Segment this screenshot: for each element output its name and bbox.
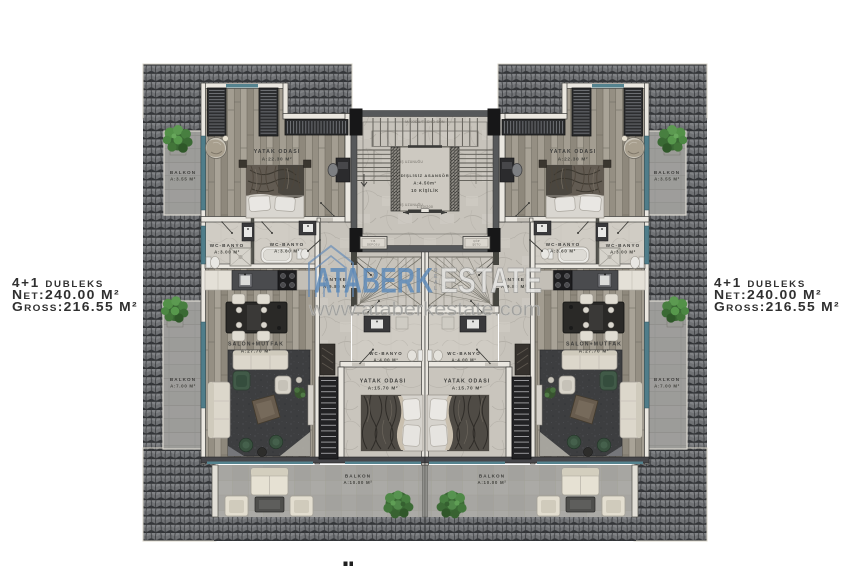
svg-text:WC-BANYO: WC-BANYO bbox=[270, 242, 305, 247]
svg-text:DİŞLİSİZ ASANSÖR: DİŞLİSİZ ASANSÖR bbox=[401, 173, 450, 178]
svg-text:A:3.00 M²: A:3.00 M² bbox=[610, 250, 636, 255]
svg-text:A:15.70 M²: A:15.70 M² bbox=[368, 386, 398, 391]
svg-text:A:3.00 M²: A:3.00 M² bbox=[214, 250, 240, 255]
svg-text:A:4.50m²: A:4.50m² bbox=[413, 181, 436, 186]
svg-text:BALKON: BALKON bbox=[654, 170, 680, 175]
svg-text:WC-BANYO: WC-BANYO bbox=[210, 243, 245, 248]
svg-text:A:15.70 M²: A:15.70 M² bbox=[452, 386, 482, 391]
svg-text:ESTATE: ESTATE bbox=[440, 262, 542, 301]
svg-text:1:50/200: 1:50/200 bbox=[417, 205, 433, 209]
svg-text:A:7.00 M²: A:7.00 M² bbox=[654, 384, 680, 389]
svg-text:WC-BANYO: WC-BANYO bbox=[447, 351, 480, 356]
svg-text:KİRİŞ UZUNUĞU: KİRİŞ UZUNUĞU bbox=[394, 159, 423, 164]
svg-text:A:7.00 M²: A:7.00 M² bbox=[170, 384, 196, 389]
svg-text:YATAK ODASI: YATAK ODASI bbox=[254, 149, 301, 155]
svg-text:BALKON: BALKON bbox=[479, 474, 505, 479]
svg-text:M.KODU/TECHO SON: M.KODU/TECHO SON bbox=[405, 120, 445, 124]
svg-text:BALKON: BALKON bbox=[170, 170, 196, 175]
svg-text:ŞÜTÜ: ŞÜTÜ bbox=[472, 243, 480, 247]
svg-text:Y.B.: Y.B. bbox=[371, 239, 377, 243]
svg-text:YATAK ODASI: YATAK ODASI bbox=[444, 379, 491, 385]
svg-text:A:27.70 M²: A:27.70 M² bbox=[241, 349, 271, 354]
svg-text:BALKON: BALKON bbox=[654, 377, 680, 382]
svg-text:WC-BANYO: WC-BANYO bbox=[369, 351, 402, 356]
svg-text:A:3.55 M²: A:3.55 M² bbox=[170, 177, 196, 182]
svg-text:BALKON: BALKON bbox=[345, 474, 371, 479]
svg-text:A:4.00 M²: A:4.00 M² bbox=[374, 358, 399, 363]
svg-text:WC-BANYO: WC-BANYO bbox=[606, 243, 641, 248]
svg-text:SALON+MUTFAK: SALON+MUTFAK bbox=[228, 342, 284, 348]
svg-text:YATAK ODASI: YATAK ODASI bbox=[550, 149, 597, 155]
svg-text:A:22.30 M²: A:22.30 M² bbox=[262, 157, 292, 162]
svg-text:A:3.55 M²: A:3.55 M² bbox=[654, 177, 680, 182]
svg-text:ÇÖP: ÇÖP bbox=[473, 239, 480, 243]
svg-text:YATAK ODASI: YATAK ODASI bbox=[360, 379, 407, 385]
svg-text:A:4.00 M²: A:4.00 M² bbox=[452, 358, 477, 363]
svg-text:BALKON: BALKON bbox=[170, 377, 196, 382]
svg-text:www.ataberkestate.com: www.ataberkestate.com bbox=[308, 300, 541, 321]
svg-text:Gross:216.55 M²: Gross:216.55 M² bbox=[714, 300, 840, 314]
svg-text:A:3.60 M²: A:3.60 M² bbox=[550, 249, 576, 254]
svg-text:L: L bbox=[434, 286, 437, 292]
svg-text:A:3.60 M²: A:3.60 M² bbox=[274, 249, 300, 254]
svg-text:WC-BANYO: WC-BANYO bbox=[546, 242, 581, 247]
svg-text:DEPOSU: DEPOSU bbox=[367, 243, 380, 247]
svg-text:Gross:216.55 M²: Gross:216.55 M² bbox=[12, 300, 138, 314]
svg-text:SALON+MUTFAK: SALON+MUTFAK bbox=[566, 342, 622, 348]
svg-text:10 KİŞİLİK: 10 KİŞİLİK bbox=[411, 188, 439, 193]
svg-text:A:22.30 M²: A:22.30 M² bbox=[558, 157, 588, 162]
svg-text:A:10.00 M²: A:10.00 M² bbox=[478, 480, 507, 485]
svg-text:A:10.00 M²: A:10.00 M² bbox=[344, 480, 373, 485]
svg-text:A:27.70 M²: A:27.70 M² bbox=[579, 349, 609, 354]
svg-text:ATABERK: ATABERK bbox=[314, 262, 433, 301]
